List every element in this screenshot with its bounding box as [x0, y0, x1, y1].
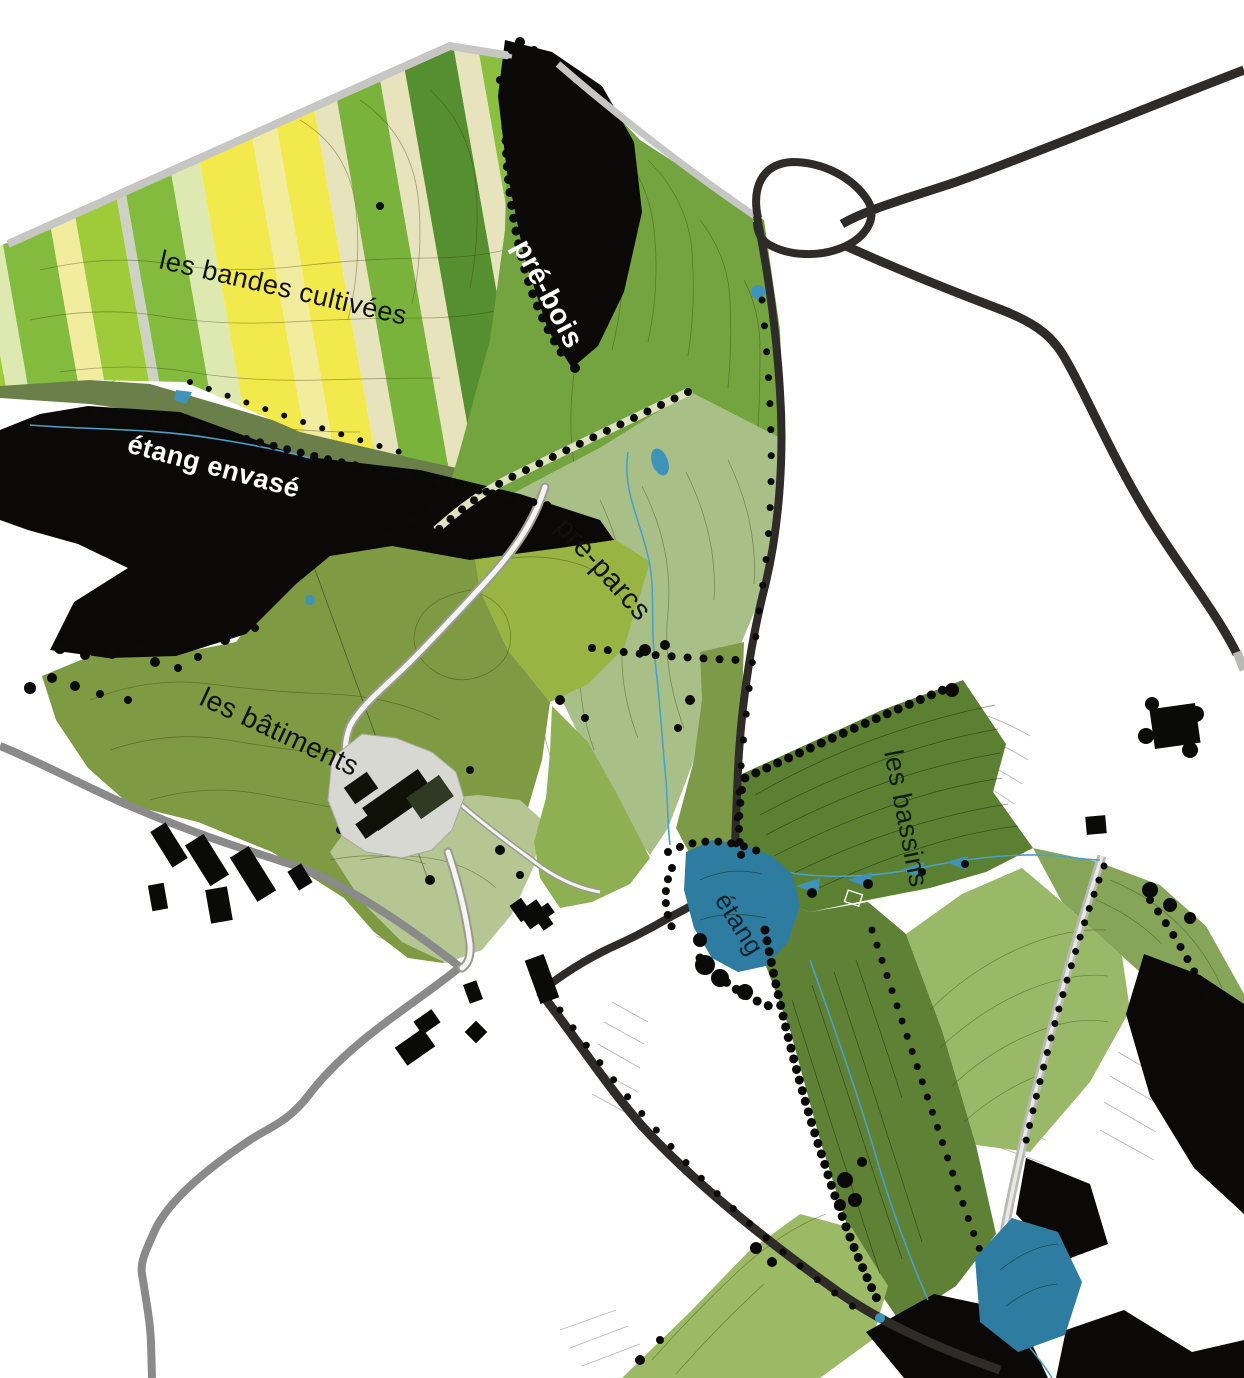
isolated-buildings	[1085, 697, 1204, 835]
road-dark-top	[842, 70, 1244, 224]
map-canvas: les bandes cultivées pré-bois étang enva…	[0, 0, 1244, 1378]
road-gray-southwest	[142, 967, 460, 1378]
landscape-plan-map: les bandes cultivées pré-bois étang enva…	[0, 0, 1244, 1378]
small-pond-6	[875, 1313, 885, 1323]
road-dark-east-tip	[1237, 652, 1244, 670]
building-square-small	[1085, 815, 1106, 835]
small-pond-5	[305, 595, 315, 605]
road-dark-loop	[756, 162, 871, 254]
road-dark-east	[846, 246, 1237, 654]
